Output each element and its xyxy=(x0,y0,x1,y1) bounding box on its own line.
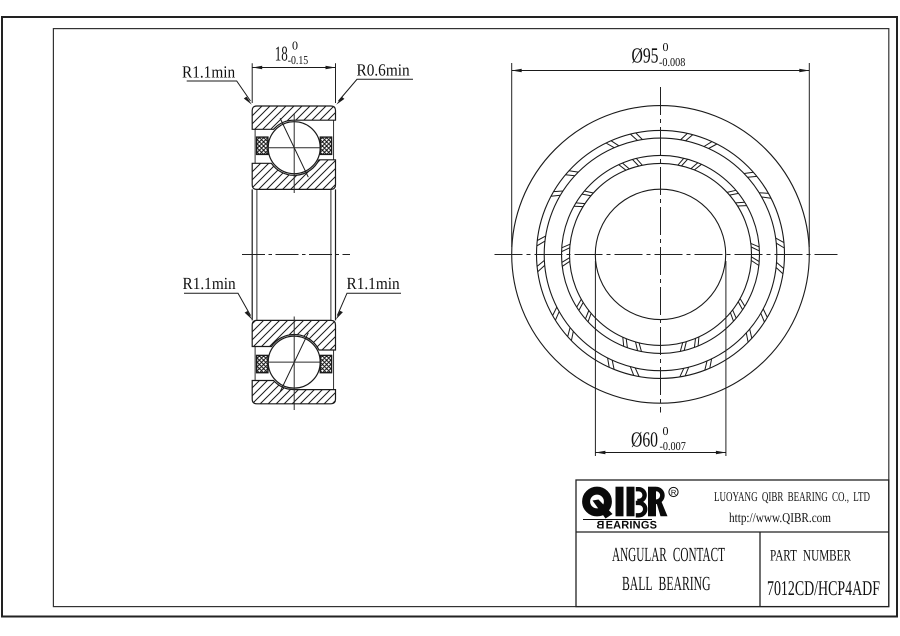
svg-text:-0.15: -0.15 xyxy=(288,53,309,67)
svg-text:Ø60: Ø60 xyxy=(631,427,658,451)
svg-text:R1.1min: R1.1min xyxy=(347,274,401,293)
svg-text:http://www.QIBR.com: http://www.QIBR.com xyxy=(729,510,831,525)
svg-text:Ø95: Ø95 xyxy=(632,43,659,67)
svg-text:R1.1min: R1.1min xyxy=(182,63,236,82)
svg-text:-0.007: -0.007 xyxy=(660,439,686,453)
svg-text:18: 18 xyxy=(275,42,288,66)
svg-text:7012CD/HCP4ADF: 7012CD/HCP4ADF xyxy=(767,576,880,600)
svg-text:R: R xyxy=(671,488,677,497)
svg-text:LUOYANG QIBR BEARING CO., LTD: LUOYANG QIBR BEARING CO., LTD xyxy=(714,489,870,504)
svg-text:-0.008: -0.008 xyxy=(659,55,685,69)
svg-text:0: 0 xyxy=(663,40,669,54)
svg-text:BALL BEARING: BALL BEARING xyxy=(622,573,711,595)
svg-text:0: 0 xyxy=(292,39,298,53)
svg-text:R1.1min: R1.1min xyxy=(183,274,237,293)
svg-text:B: B xyxy=(596,520,604,532)
svg-text:ANGULAR CONTACT: ANGULAR CONTACT xyxy=(612,544,725,566)
svg-text:0: 0 xyxy=(663,424,669,438)
svg-text:EARINGS: EARINGS xyxy=(606,520,658,532)
svg-text:PART NUMBER: PART NUMBER xyxy=(770,548,851,565)
svg-text:R0.6min: R0.6min xyxy=(357,61,411,80)
